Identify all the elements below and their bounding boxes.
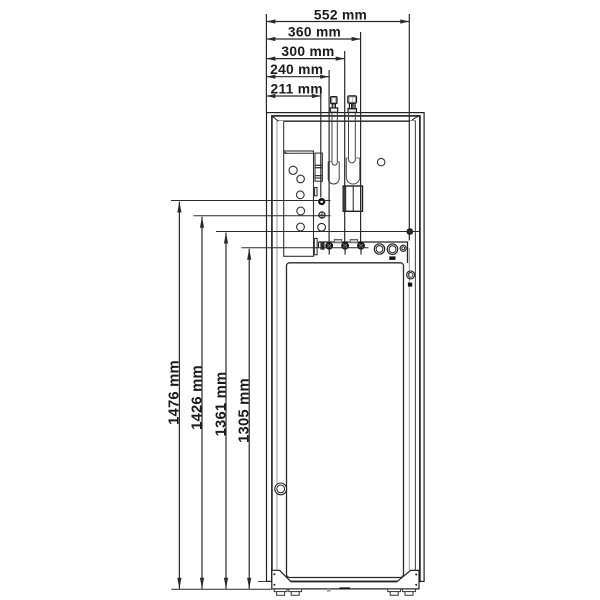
svg-text:1361 mm: 1361 mm — [213, 372, 229, 437]
svg-text:300 mm: 300 mm — [281, 44, 334, 59]
svg-text:211 mm: 211 mm — [270, 82, 322, 97]
svg-text:1476 mm: 1476 mm — [167, 360, 183, 425]
svg-text:240 mm: 240 mm — [270, 62, 323, 77]
svg-text:552 mm: 552 mm — [314, 8, 367, 23]
svg-text:1305 mm: 1305 mm — [237, 378, 253, 443]
svg-text:1426 mm: 1426 mm — [189, 365, 205, 430]
svg-text:360 mm: 360 mm — [288, 25, 341, 40]
